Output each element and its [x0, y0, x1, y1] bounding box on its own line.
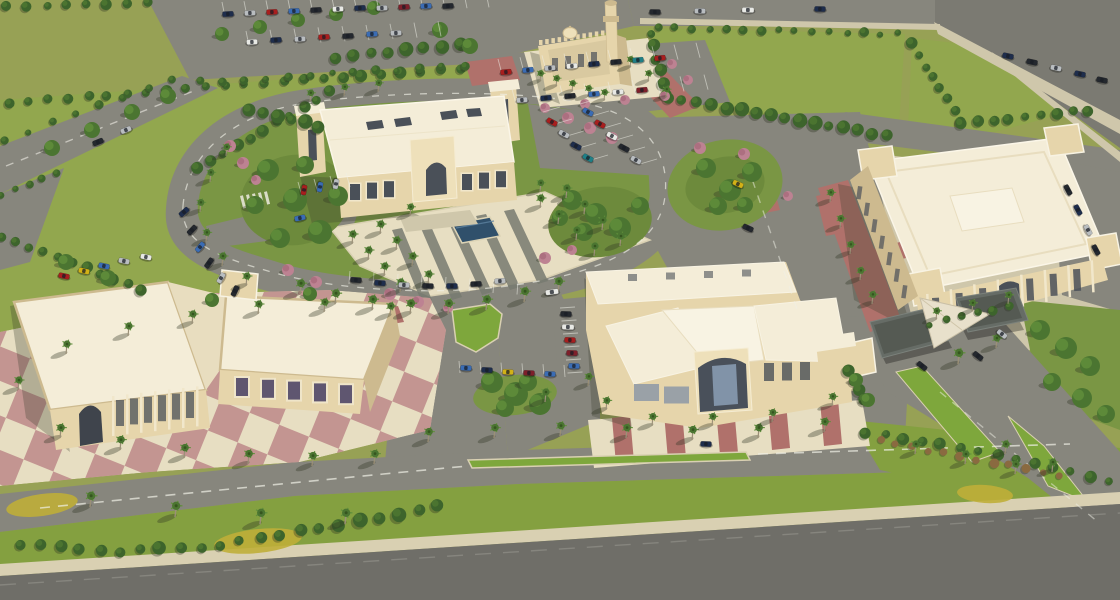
hedge-highlight [1083, 107, 1089, 113]
mosque-crenellation-item [545, 39, 549, 44]
hedge-highlight [146, 85, 150, 89]
hedge-highlight [916, 52, 920, 56]
palm-crown-center [860, 269, 862, 271]
hedge-highlight [708, 26, 712, 30]
car-windshield [566, 325, 570, 329]
hedge-highlight [367, 48, 372, 53]
hedge-highlight [688, 26, 693, 31]
hedge-highlight [1106, 478, 1110, 482]
car-windshield [568, 94, 572, 98]
palm-crown-center [120, 438, 123, 441]
hedge-highlight [136, 285, 142, 291]
hedge-highlight [314, 524, 320, 530]
palm-crown-center [692, 428, 695, 431]
cb-skylight-4 [466, 108, 482, 117]
bl-pillars-a-item [140, 393, 143, 433]
hedge-highlight [235, 537, 240, 542]
tree-highlight [862, 394, 870, 402]
palm-crown-center [410, 206, 412, 208]
hedge-highlight [169, 76, 173, 80]
hedge-highlight [1038, 111, 1043, 116]
hedge-highlight [658, 78, 665, 85]
flowering-tree-highlight [311, 277, 318, 284]
hedge-highlight [1056, 473, 1060, 477]
hedge-highlight [393, 509, 401, 517]
tree-highlight [309, 222, 322, 235]
hedge-highlight [437, 41, 444, 48]
tree-highlight [297, 157, 307, 167]
hedge-highlight [44, 95, 49, 100]
palm-crown-center [1015, 463, 1018, 466]
flowering-tree-highlight [668, 60, 674, 66]
car-windshield [504, 70, 508, 74]
tree-highlight [254, 21, 262, 29]
hedge-highlight [26, 130, 29, 133]
hedge-highlight [5, 99, 10, 104]
mosque-dome [563, 28, 577, 39]
palm-crown-center [576, 229, 579, 232]
bl-windows-b-item [340, 385, 352, 403]
tree-highlight [710, 198, 720, 208]
mosque-windows-item [578, 54, 584, 67]
hedge-highlight [656, 65, 663, 72]
tree-highlight [368, 2, 376, 10]
hedge-highlight [776, 27, 780, 31]
car-windshield [250, 40, 254, 44]
palm-crown-center [606, 399, 608, 401]
hedge-highlight [16, 541, 22, 547]
hedge-highlight [296, 525, 303, 532]
hedge-highlight [330, 70, 333, 73]
car-windshield [248, 11, 252, 15]
bl-windows-a-item [130, 398, 138, 424]
bc-windows-right-item [782, 363, 792, 381]
palm-crown-center [324, 301, 327, 304]
hedge-highlight [325, 86, 331, 92]
car-windshield [474, 282, 478, 286]
hedge-highlight [956, 452, 961, 457]
palm-crown-center [260, 511, 263, 514]
cb-windows-right-item [479, 173, 489, 189]
hedge-highlight [182, 85, 187, 90]
car-windshield [592, 92, 596, 96]
palm-crown-center [996, 337, 999, 340]
palm-crown-center [222, 255, 225, 258]
palm-crown-center [594, 245, 597, 248]
hedge-highlight [943, 316, 947, 320]
car-windshield [498, 279, 502, 283]
tree-highlight [850, 374, 858, 382]
car-windshield [520, 98, 524, 102]
hedge-highlight [95, 101, 100, 106]
hedge-highlight [438, 63, 442, 67]
bc-back-windows-item [666, 273, 675, 280]
hedge-highlight [13, 186, 16, 189]
palm-crown-center [965, 453, 968, 456]
hedge-highlight [882, 130, 888, 136]
car-windshield [614, 60, 618, 64]
flowering-tree-highlight [585, 123, 592, 130]
hedge-highlight [374, 513, 381, 520]
car-windshield [370, 32, 374, 36]
hedge-highlight [925, 448, 929, 452]
palm-crown-center [602, 219, 605, 222]
palm-crown-center [824, 420, 827, 423]
flowering-tree-highlight [283, 265, 290, 272]
hedge-highlight [1003, 115, 1009, 121]
car-windshield [322, 35, 326, 39]
car-windshield [506, 370, 510, 374]
car-windshield [746, 8, 750, 12]
hedge-highlight [12, 238, 17, 243]
hedge-highlight [136, 545, 141, 550]
minaret-shaft [605, 2, 618, 62]
cb-arch-opening [426, 162, 447, 196]
hedge-highlight [22, 2, 28, 8]
minaret-cap [605, 0, 617, 6]
hedge-highlight [64, 95, 70, 101]
palm-crown-center [210, 171, 212, 173]
palm-crown-center [374, 452, 377, 455]
palm-crown-center [840, 217, 842, 219]
hedge-highlight [975, 309, 979, 313]
car-windshield [564, 312, 568, 316]
hedge-highlight [56, 541, 63, 548]
mosque-crenellation-item [539, 40, 543, 45]
hedge-highlight [1012, 455, 1017, 460]
hedge-highlight [27, 181, 31, 185]
tree-highlight [161, 89, 170, 98]
mosque-crenellation-item [601, 31, 605, 36]
hedge-highlight [1086, 472, 1093, 479]
car-windshield [298, 37, 302, 41]
palm-crown-center [850, 243, 852, 245]
palm-crown-center [915, 443, 918, 446]
car-windshield [485, 368, 489, 372]
hedge-highlight [739, 26, 744, 31]
bl-windows-b-item [314, 383, 326, 401]
hedge-highlight [307, 73, 311, 77]
car [445, 283, 459, 290]
palm-crown-center [972, 302, 974, 304]
hedge-highlight [124, 90, 129, 95]
hedge-highlight [1052, 109, 1058, 115]
hedge-highlight [827, 29, 831, 33]
hedge-highlight [878, 437, 882, 441]
bc-windows-right-item [764, 363, 774, 381]
hedge-highlight [62, 1, 67, 6]
bl-pillars-a-item [196, 386, 199, 426]
hedge-highlight [780, 113, 786, 119]
bl-pillars-a-item [126, 394, 129, 434]
palm-crown-center [626, 426, 629, 429]
palm-crown-center [630, 58, 632, 60]
bc-arch-mural [712, 364, 738, 406]
bc-windows-right [764, 362, 810, 381]
hedge-highlight [74, 544, 80, 550]
palm-crown-center [384, 265, 387, 268]
tree-highlight [59, 255, 68, 264]
flowering-tree-highlight [540, 253, 547, 260]
hedge-highlight [929, 73, 934, 78]
car-windshield [550, 290, 555, 295]
hedge-highlight [895, 30, 898, 33]
palm-crown-center [772, 411, 774, 413]
hedge-highlight [257, 533, 263, 539]
bc-back-windows-item [742, 270, 751, 277]
car [693, 8, 707, 15]
flowering-tree-highlight [252, 176, 258, 182]
bl-pillars-a-item [154, 391, 157, 431]
hedge-highlight [1030, 459, 1036, 465]
tree-highlight [743, 164, 754, 175]
palm-crown-center [312, 454, 315, 457]
hedge-highlight [677, 96, 682, 101]
hedge-highlight [462, 63, 467, 68]
flowering-tree-highlight [563, 113, 570, 120]
hedge-highlight [766, 109, 773, 116]
hedge-highlight [649, 40, 656, 47]
tree-highlight [206, 294, 214, 302]
palm-crown-center [832, 395, 834, 397]
car-windshield [570, 351, 574, 355]
hedge-highlight [216, 542, 221, 547]
hedge-highlight [285, 73, 290, 78]
hedge-highlight [38, 175, 42, 179]
hedge-highlight [883, 431, 887, 435]
hedge-highlight [339, 73, 345, 79]
hedge-highlight [867, 129, 874, 136]
tree-highlight [45, 141, 54, 150]
car-windshield [354, 278, 358, 282]
hedge-highlight [198, 544, 203, 549]
hedge-highlight [219, 78, 224, 83]
palm-crown-center [1052, 461, 1055, 464]
car-windshield [336, 7, 340, 11]
car [813, 6, 827, 13]
car-windshield [616, 90, 620, 94]
palm-crown-center [872, 293, 874, 295]
palm-crown-center [540, 197, 543, 200]
flowering-tree-highlight [784, 192, 790, 198]
hedge-highlight [975, 448, 979, 452]
hedge-highlight [177, 543, 183, 549]
car-windshield [292, 9, 296, 13]
hedge-highlight [838, 121, 845, 128]
mosque-crenellation-item [595, 31, 599, 36]
palm-crown-center [936, 310, 938, 312]
hedge-highlight [989, 307, 994, 312]
hedge-highlight [383, 48, 389, 54]
hedge-highlight [722, 103, 729, 110]
palm-crown-center [192, 313, 195, 316]
hedge-highlight [825, 122, 830, 127]
cb-windows-right-item [496, 171, 506, 187]
tree-highlight [216, 28, 224, 36]
car-windshield [526, 68, 530, 72]
bl-windows-a-item [116, 400, 124, 426]
hedge-highlight [2, 2, 8, 8]
rb-front-windows-item [1026, 278, 1034, 300]
palm-crown-center [368, 249, 371, 252]
hedge-highlight [50, 118, 54, 122]
car-windshield [380, 6, 384, 10]
hedge-highlight [97, 546, 103, 552]
palm-crown-center [226, 146, 228, 148]
hedge-highlight [692, 97, 698, 103]
hedge-highlight [247, 135, 252, 140]
hedge-highlight [39, 247, 44, 252]
palm-crown-center [352, 233, 355, 236]
hedge-highlight [1022, 465, 1027, 470]
car-windshield [548, 66, 552, 70]
tree-highlight [304, 288, 312, 296]
hedge-highlight [794, 114, 802, 122]
palm-crown-center [524, 290, 527, 293]
hedge-highlight [354, 514, 362, 522]
palm-crown-center [175, 504, 178, 507]
mosque-crenellation-item [582, 33, 586, 38]
palm-crown-center [1005, 443, 1008, 446]
bl-pillars-a-item [112, 396, 115, 436]
hedge-highlight [243, 104, 250, 111]
mosque-crenellation-item [551, 38, 555, 43]
hedge-highlight [312, 122, 319, 129]
bc-windows-right-item [800, 362, 810, 380]
car-windshield [426, 284, 430, 288]
palm-crown-center [584, 203, 587, 206]
hedge-highlight [655, 24, 659, 28]
palm-crown-center [620, 235, 623, 238]
flowering-tree-highlight [695, 143, 702, 150]
palm-crown-center [300, 282, 303, 285]
palm-crown-center [830, 191, 832, 193]
hedge-highlight [272, 110, 280, 118]
cb-windows-left-item [367, 183, 377, 199]
palm-crown-center [604, 91, 606, 93]
car-windshield [704, 442, 708, 446]
palm-crown-center [412, 255, 415, 258]
palm-crown-center [556, 77, 558, 79]
car-windshield [358, 6, 362, 10]
bc-panels-left-item [634, 384, 659, 401]
palm-crown-center [648, 72, 650, 74]
palm-crown-center [410, 302, 413, 305]
rb-front-windows-item [1073, 269, 1081, 291]
car-windshield [446, 4, 450, 8]
hedge-highlight [957, 444, 962, 449]
hedge-highlight [240, 77, 245, 82]
hedge-highlight [843, 365, 850, 372]
hedge-highlight [791, 28, 795, 32]
tree-highlight [738, 198, 747, 207]
palm-crown-center [246, 275, 249, 278]
bl-windows-a-item [158, 395, 166, 421]
hedge-highlight [418, 43, 424, 49]
hedge-highlight [1005, 461, 1009, 465]
hedge-highlight [1070, 107, 1075, 112]
tree-highlight [1098, 406, 1108, 416]
tree-highlight [720, 181, 732, 193]
hedge-highlight [86, 92, 91, 97]
car-windshield [653, 10, 657, 14]
palm-crown-center [588, 375, 590, 377]
bl-windows-a-item [144, 397, 152, 423]
hedge-highlight [192, 163, 199, 170]
car-windshield [270, 10, 274, 14]
hedge-highlight [55, 253, 60, 258]
hedge-highlight [300, 75, 306, 81]
hedge-highlight [432, 500, 439, 507]
hedge-highlight [758, 27, 763, 32]
bl-pillars-a-item [182, 388, 185, 428]
car-windshield [402, 5, 406, 9]
palm-crown-center [540, 182, 542, 184]
car-windshield [570, 64, 574, 68]
palm-crown-center [396, 239, 399, 242]
car-windshield [378, 281, 382, 285]
car-windshield [636, 58, 640, 62]
hedge-highlight [898, 434, 905, 441]
hedge-highlight [853, 124, 860, 131]
palm-crown-center [428, 430, 431, 433]
hedge-highlight [36, 540, 42, 546]
palm-crown-center [558, 280, 561, 283]
palm-crown-center [344, 86, 346, 88]
hedge-highlight [919, 437, 924, 442]
car-windshield [402, 283, 406, 287]
car-windshield [424, 4, 428, 8]
hedge-highlight [990, 117, 996, 123]
hedge-highlight [313, 97, 318, 102]
tree-highlight [85, 123, 94, 132]
hedge-highlight [952, 107, 957, 112]
bl-windows-b-item [236, 378, 248, 396]
flowering-tree-highlight [684, 76, 690, 82]
tree-highlight [258, 161, 270, 173]
hedge-highlight [321, 75, 326, 80]
mosque-dome-finial [569, 26, 572, 29]
palm-crown-center [558, 213, 561, 216]
hedge-highlight [907, 38, 913, 44]
car-windshield [544, 96, 548, 100]
car-windshield [658, 56, 662, 60]
hedge-highlight [299, 115, 307, 123]
palm-crown-center [1008, 294, 1010, 296]
cb-windows-right-item [462, 174, 472, 190]
aerial-render-scene [0, 0, 1120, 600]
cb-windows-right [462, 171, 506, 190]
palm-crown-center [60, 426, 63, 429]
car [648, 9, 662, 16]
tree-highlight [1073, 390, 1084, 401]
palm-crown-center [345, 511, 348, 514]
tree-highlight [697, 160, 708, 171]
hedge-highlight [116, 548, 122, 554]
hedge-highlight [263, 76, 267, 80]
hedge-highlight [944, 94, 949, 99]
hedge-highlight [415, 505, 421, 511]
flowering-tree-highlight [621, 96, 627, 102]
hedge-highlight [125, 280, 130, 285]
cb-windows-left [350, 181, 394, 200]
mosque-crenellation-item [558, 37, 562, 42]
palm-crown-center [128, 325, 131, 328]
palm-crown-center [958, 351, 961, 354]
hedge-highlight [1, 137, 6, 142]
mosque-crenellation-item [589, 32, 593, 37]
hedge-highlight [372, 66, 377, 71]
